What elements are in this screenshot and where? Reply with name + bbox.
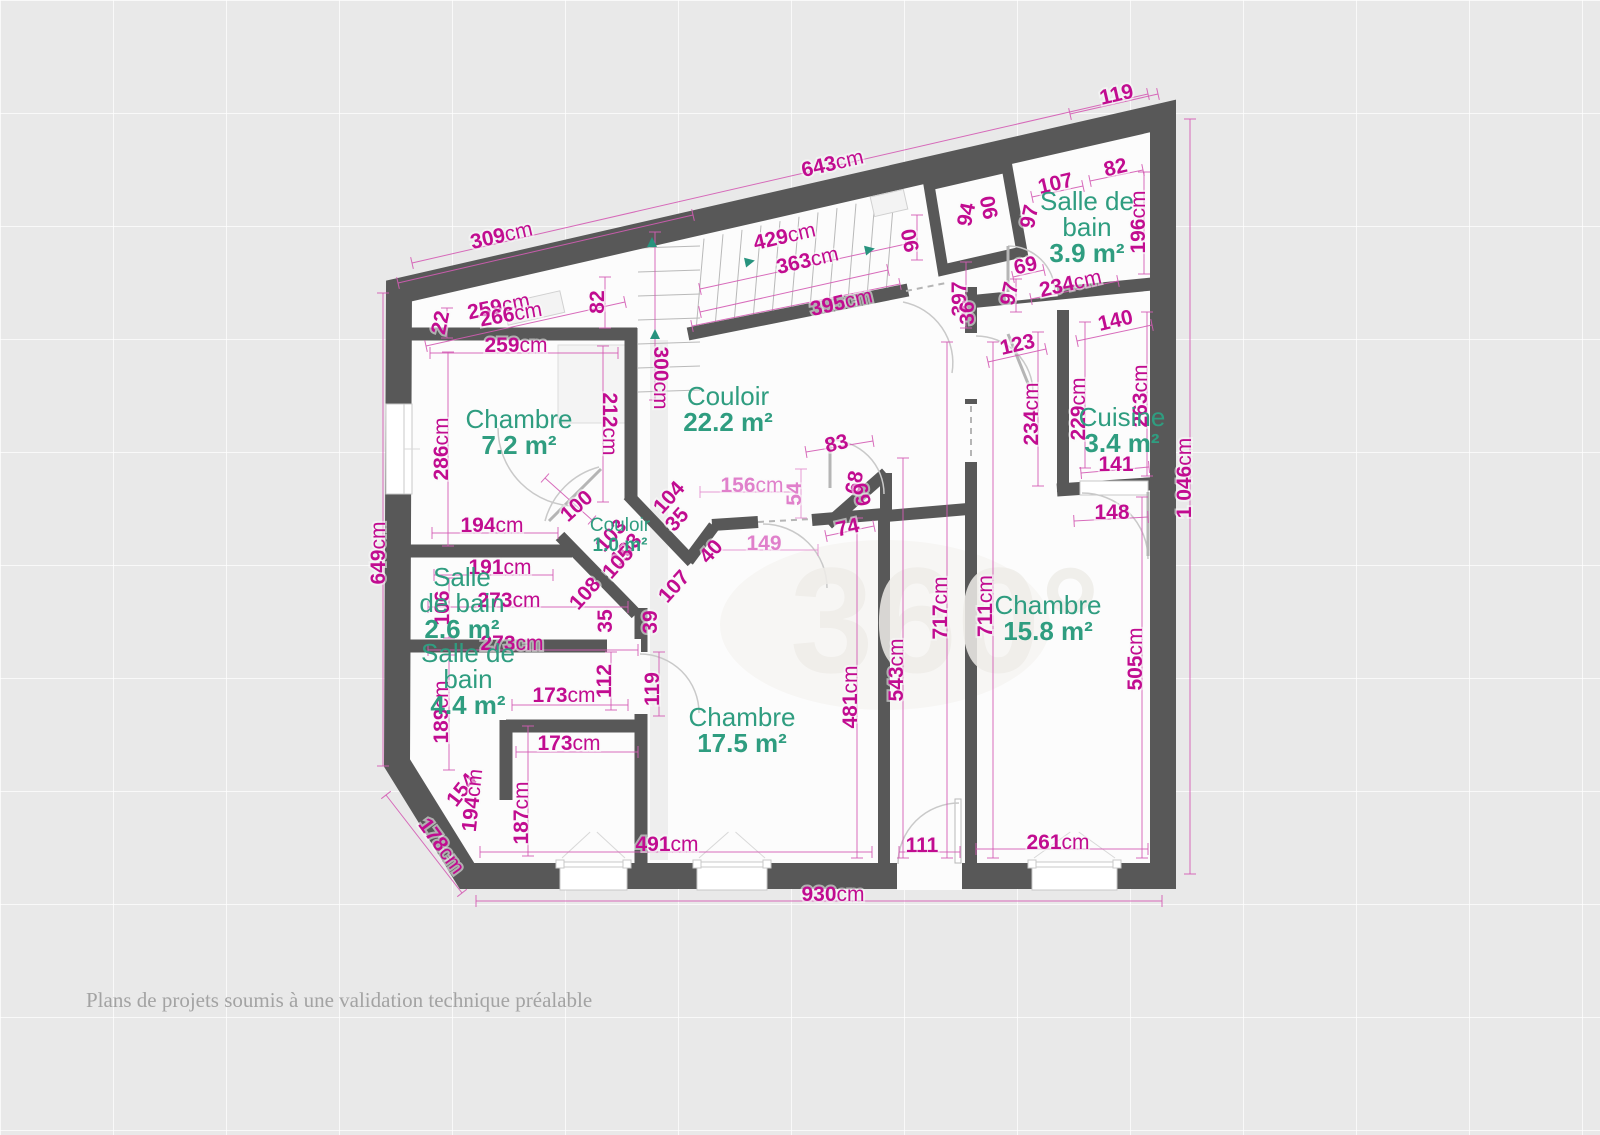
entrance-door-opening <box>897 862 962 890</box>
room-label: Chambre15.8 m² <box>995 590 1102 646</box>
dim-label: 187cm <box>510 781 533 844</box>
dim-label: 1 046cm <box>1173 438 1196 519</box>
room-area: 15.8 m² <box>1003 616 1093 646</box>
dim-label: 717cm <box>929 576 952 639</box>
dimension-tick <box>1074 515 1075 527</box>
dim-label: 148 <box>1094 501 1129 524</box>
dim-label: 54 <box>783 482 806 506</box>
dim-label: 119 <box>641 672 664 706</box>
dim-label: 491cm <box>635 833 698 856</box>
room-name: Couloir <box>590 515 651 536</box>
dim-label: 286cm <box>430 417 453 480</box>
room-label: Couloir1.0 m² <box>590 515 651 556</box>
dimension-tick <box>1148 511 1149 523</box>
room-area: 22.2 m² <box>683 407 773 437</box>
room-label: Chambre7.2 m² <box>466 404 573 460</box>
dim-label: 194cm <box>460 514 523 537</box>
room-area: 3.4 m² <box>1084 428 1159 458</box>
dim-label: 173cm <box>537 732 600 755</box>
dim-label: 90 <box>897 227 924 255</box>
dimension-tick <box>457 889 466 896</box>
room-label: Couloir22.2 m² <box>683 381 773 437</box>
dim-label: 111 <box>906 834 939 857</box>
dim-label: 505cm <box>1124 627 1147 690</box>
dim-label: 149 <box>746 532 781 555</box>
floor-plan-svg: 360° 119643cm309cm429cm363cm395cm259cm26… <box>0 0 1600 1130</box>
dimension-tick <box>381 791 390 798</box>
dim-label: 97 <box>996 280 1023 308</box>
room-label: Cuisine3.4 m² <box>1079 402 1166 458</box>
room-area: 1.0 m² <box>593 535 648 556</box>
footer-disclaimer: Plans de projets soumis à une validation… <box>86 988 592 1013</box>
room-area: 3.9 m² <box>1049 238 1124 268</box>
dim-label: 481cm <box>839 665 862 728</box>
room-area: 17.5 m² <box>697 728 787 758</box>
dim-label: 234cm <box>1020 382 1043 445</box>
room-label: Chambre17.5 m² <box>689 702 796 758</box>
room-area: 4.4 m² <box>430 690 505 720</box>
dim-label: 22 <box>427 309 454 337</box>
dim-label: 930cm <box>801 883 864 906</box>
dim-label: 35 <box>594 609 617 633</box>
dim-label: 649cm <box>367 521 390 584</box>
dim-label: 90 <box>976 194 1003 222</box>
dim-label: 69 <box>849 481 876 509</box>
dim-label: 82 <box>586 290 609 313</box>
dim-label: 259cm <box>484 334 547 357</box>
dim-label: 39 <box>639 610 662 633</box>
dim-label: 156cm <box>720 474 783 497</box>
dim-label: 119 <box>1097 80 1135 110</box>
dim-label: 543cm <box>885 638 908 701</box>
dim-label: 112 <box>593 664 616 698</box>
dim-label: 212cm <box>598 392 621 455</box>
room-area: 7.2 m² <box>481 430 556 460</box>
dim-label: 309cm <box>468 217 535 254</box>
dim-label: 261cm <box>1026 831 1089 854</box>
dim-label: 173cm <box>532 684 595 707</box>
dim-label: 36 <box>956 301 979 324</box>
dim-label: 300cm <box>649 346 672 409</box>
